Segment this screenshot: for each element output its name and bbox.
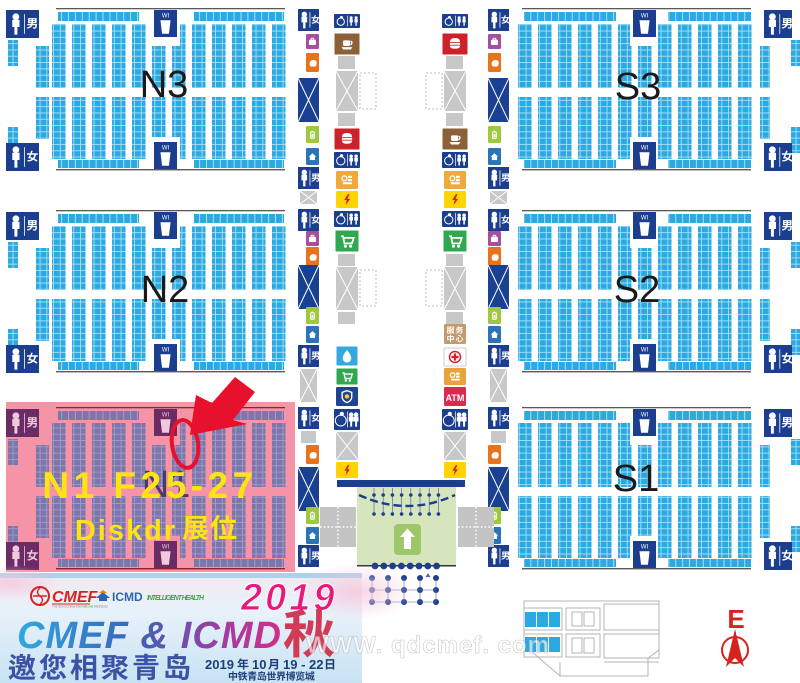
svg-text:WWW. qdcmef. com: WWW. qdcmef. com [306, 632, 550, 659]
svg-text:S2: S2 [614, 269, 660, 311]
svg-text:INTELLIGENT HEALTH: INTELLIGENT HEALTH [147, 595, 205, 602]
svg-text:WI: WI [162, 216, 170, 222]
svg-text:10: 10 [252, 657, 266, 672]
svg-text:The 82nd China International M: The 82nd China International Medicinal [52, 605, 108, 609]
svg-text:WI: WI [641, 348, 649, 354]
svg-text:WI: WI [641, 14, 649, 20]
svg-text:WI: WI [641, 545, 649, 551]
svg-text:ICMD: ICMD [112, 590, 143, 604]
svg-text:S1: S1 [613, 458, 659, 500]
svg-text:CMEF: CMEF [52, 589, 99, 606]
svg-text:S3: S3 [615, 66, 661, 108]
svg-text:WI: WI [162, 146, 170, 152]
svg-text:N3: N3 [140, 64, 189, 106]
svg-text:WI: WI [162, 14, 170, 20]
svg-text:2019: 2019 [205, 657, 234, 672]
svg-text:ATM: ATM [446, 393, 465, 403]
svg-text:19 - 22: 19 - 22 [283, 657, 323, 672]
svg-text:N1 F25-27: N1 F25-27 [42, 465, 257, 506]
svg-text:WI: WI [162, 348, 170, 354]
svg-text:E: E [727, 604, 744, 634]
svg-text:WI: WI [641, 146, 649, 152]
svg-text:N2: N2 [141, 269, 190, 311]
svg-text:Diskdr: Diskdr [75, 515, 177, 547]
svg-text:WI: WI [162, 413, 170, 419]
svg-text:WI: WI [641, 413, 649, 419]
svg-text:WI: WI [641, 216, 649, 222]
svg-text:CMEF & ICMD: CMEF & ICMD [17, 615, 281, 657]
